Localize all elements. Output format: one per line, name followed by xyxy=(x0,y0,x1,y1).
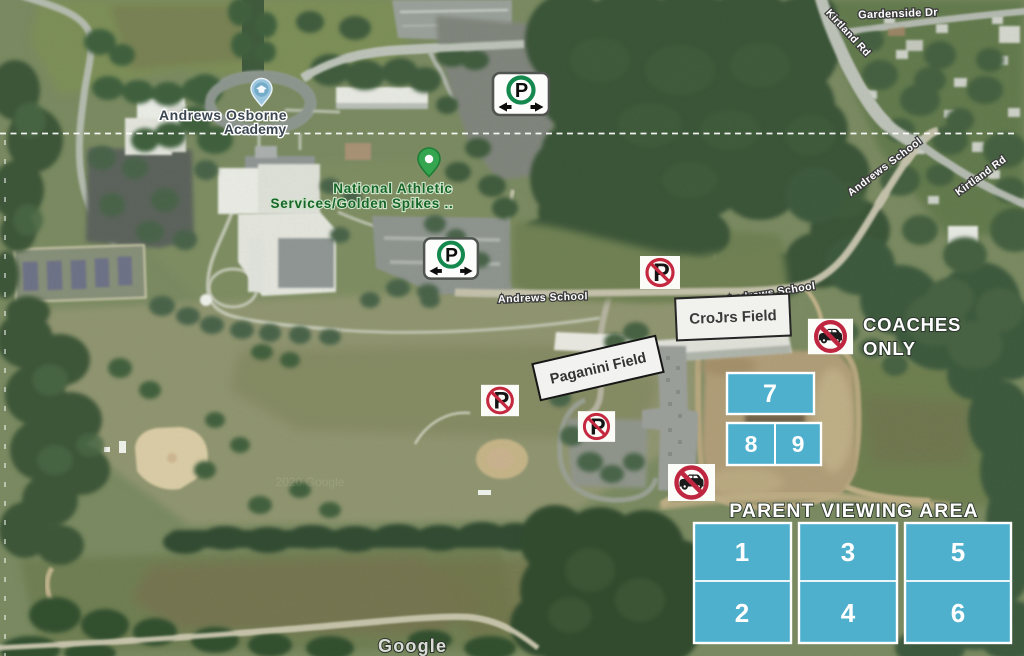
svg-text:3: 3 xyxy=(841,537,855,567)
svg-text:6: 6 xyxy=(951,598,965,628)
svg-text:Google: Google xyxy=(378,636,447,656)
svg-text:2020 Google: 2020 Google xyxy=(276,475,345,489)
svg-text:Academy: Academy xyxy=(224,121,286,137)
svg-text:2: 2 xyxy=(735,598,749,628)
svg-text:PARENT VIEWING AREA: PARENT VIEWING AREA xyxy=(729,500,979,522)
svg-text:ONLY: ONLY xyxy=(863,338,916,359)
svg-text:Services/Golden Spikes ..: Services/Golden Spikes .. xyxy=(270,196,453,211)
svg-text:National Athletic: National Athletic xyxy=(333,181,453,196)
svg-text:7: 7 xyxy=(763,380,777,408)
svg-text:5: 5 xyxy=(951,537,965,567)
svg-text:8: 8 xyxy=(745,431,758,457)
svg-text:1: 1 xyxy=(735,537,749,567)
svg-text:9: 9 xyxy=(792,431,805,457)
svg-text:4: 4 xyxy=(841,598,856,628)
svg-text:COACHES: COACHES xyxy=(863,314,961,335)
